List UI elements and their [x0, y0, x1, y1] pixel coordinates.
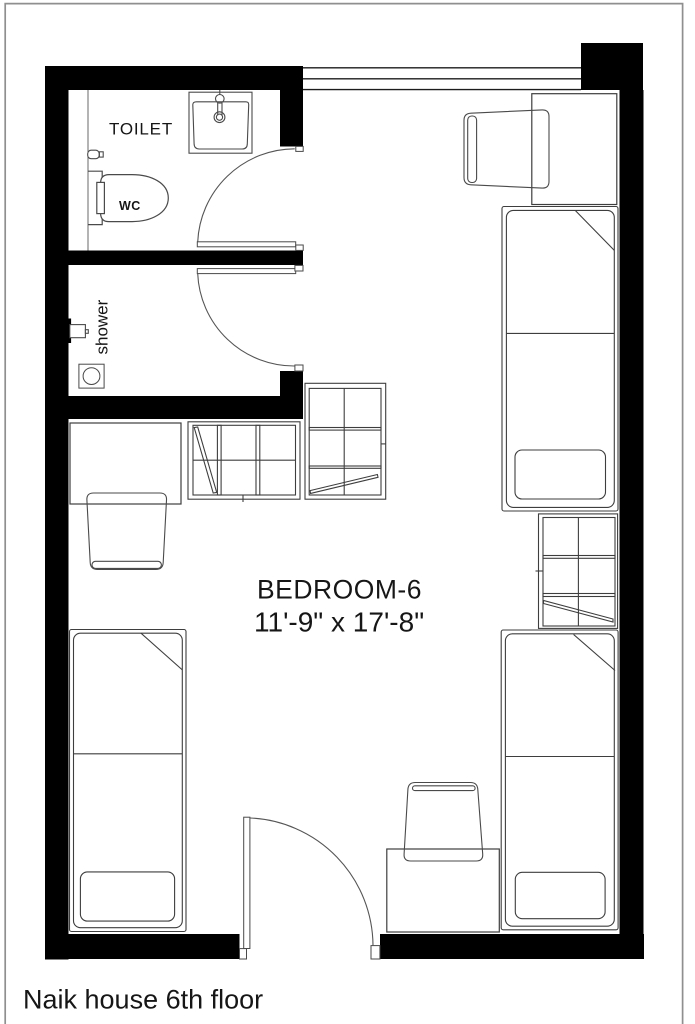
- svg-text:shower: shower: [93, 299, 112, 354]
- svg-text:WC: WC: [119, 199, 141, 213]
- svg-text:TOILET: TOILET: [109, 120, 173, 139]
- svg-text:11'-9" x 17'-8": 11'-9" x 17'-8": [254, 607, 424, 638]
- svg-text:Naik house 6th floor: Naik house 6th floor: [23, 985, 263, 1015]
- svg-text:BEDROOM-6: BEDROOM-6: [257, 575, 422, 605]
